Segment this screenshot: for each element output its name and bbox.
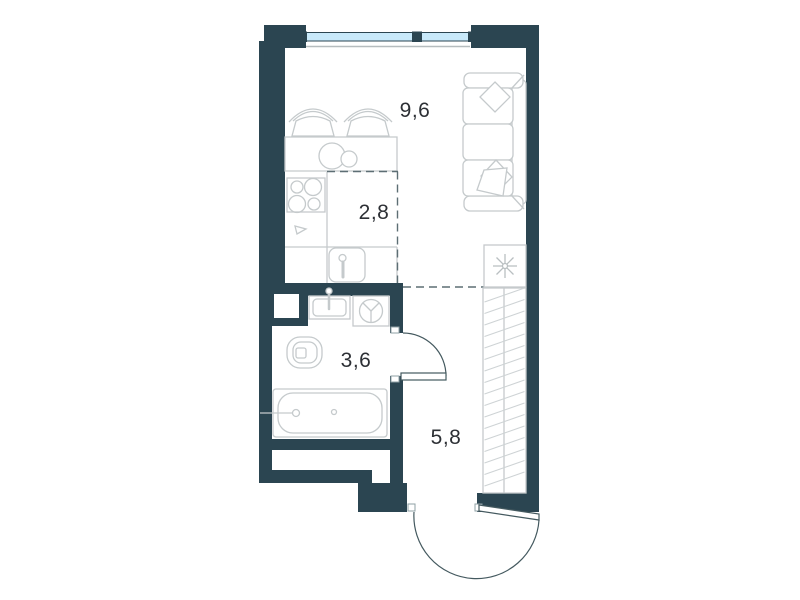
room-label-kitchen-zone: 2,8 bbox=[359, 201, 390, 224]
door-swing-arc bbox=[403, 333, 446, 376]
chair bbox=[344, 109, 392, 136]
sofa-cushion bbox=[463, 124, 513, 160]
snowflake-icon bbox=[493, 254, 517, 278]
window-end-cap-left bbox=[301, 32, 307, 43]
room-label-hallway: 5,8 bbox=[431, 426, 462, 449]
chair bbox=[289, 109, 337, 136]
bathtub-faucet bbox=[293, 410, 300, 417]
washing-machine bbox=[353, 296, 389, 326]
chair-seat bbox=[292, 117, 334, 137]
window-end-cap-right bbox=[468, 32, 474, 43]
floor-plan: 9,6 2,8 3,6 5,8 bbox=[0, 0, 800, 600]
wall-left-lower bbox=[259, 283, 272, 483]
door-swing-arc bbox=[414, 512, 539, 579]
sofa bbox=[463, 73, 526, 211]
door-jamb bbox=[408, 504, 415, 511]
wardrobe bbox=[483, 288, 526, 493]
window bbox=[301, 32, 474, 47]
window-mullion bbox=[412, 32, 422, 43]
wall-pilaster-top-right bbox=[471, 25, 539, 48]
wall-bathroom-bottom bbox=[259, 439, 403, 450]
refrigerator-spot bbox=[484, 245, 526, 287]
sofa-backrest bbox=[512, 80, 526, 204]
wall-bathroom-right-lower bbox=[390, 376, 403, 512]
entrance-door bbox=[408, 504, 539, 579]
toilet bbox=[287, 337, 322, 368]
room-label-bathroom: 3,6 bbox=[341, 349, 372, 372]
wall-left-upper bbox=[259, 41, 285, 289]
kitchen-counter bbox=[285, 172, 397, 283]
door-jamb bbox=[391, 327, 399, 333]
window-glass bbox=[305, 33, 470, 42]
chair-seat bbox=[347, 117, 389, 137]
bathroom-sink-faucet-head bbox=[326, 288, 332, 294]
kitchen-sink bbox=[329, 248, 365, 282]
wall-right bbox=[526, 48, 539, 512]
door-leaf bbox=[401, 373, 446, 380]
ventilation-shaft bbox=[274, 294, 299, 318]
room-label-living-room: 9,6 bbox=[400, 99, 431, 122]
bathtub bbox=[260, 389, 387, 437]
wall-outer-bottom-left bbox=[259, 470, 372, 483]
dining-set bbox=[285, 109, 397, 171]
cabinet-marker-icon bbox=[295, 226, 306, 234]
door-jamb bbox=[391, 376, 399, 382]
bathroom-door bbox=[391, 327, 446, 382]
table-decor-small-circle bbox=[341, 151, 357, 167]
floor-plan-drawing: 9,6 2,8 3,6 5,8 bbox=[0, 0, 800, 600]
